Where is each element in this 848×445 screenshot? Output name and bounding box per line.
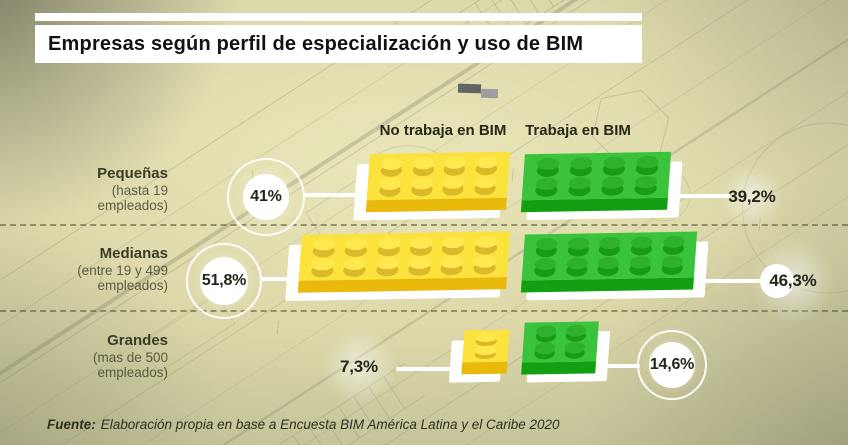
brick-base-strip: [366, 198, 507, 212]
row-label: Grandes(mas de 500empleados): [28, 333, 168, 380]
source-label: Fuente:: [47, 417, 96, 432]
row-label-name: Grandes: [28, 333, 168, 349]
source-text: Elaboración propia en base a Encuesta BI…: [101, 417, 560, 432]
value-badge-no-bim: 41%: [243, 174, 289, 220]
lego-stud: [569, 157, 592, 176]
lego-stud: [474, 235, 497, 254]
lego-stud: [474, 175, 496, 194]
row-label-detail: (hasta 19: [28, 184, 168, 199]
dashed-separator: [0, 310, 848, 312]
row-label-detail: empleados): [28, 279, 168, 294]
page-title: Empresas según perfil de especialización…: [48, 33, 583, 56]
brick-face: [522, 152, 671, 201]
background-smudge: [458, 84, 481, 94]
lego-stud: [408, 256, 431, 275]
lego-stud: [411, 177, 433, 196]
lego-stud: [534, 342, 555, 359]
brick-base-strip: [521, 198, 668, 213]
lego-stud: [598, 256, 620, 275]
brick-bim: [521, 232, 697, 293]
value-badge-bim: 14,6%: [649, 342, 695, 388]
value-badge-no-bim: 51,8%: [200, 257, 248, 305]
brick-bim: [521, 152, 671, 213]
lego-stud: [534, 257, 556, 276]
source-note: Fuente:Elaboración propia en base a Encu…: [47, 417, 560, 432]
brick-face: [367, 152, 510, 200]
lego-stud: [629, 256, 651, 275]
dashed-separator: [0, 224, 848, 226]
lego-stud: [379, 177, 401, 196]
lego-stud: [535, 325, 556, 342]
lego-stud: [343, 257, 366, 276]
row-label-detail: (entre 19 y 499: [28, 264, 168, 279]
lego-stud: [565, 325, 586, 342]
lego-stud: [442, 176, 464, 195]
lego-stud: [412, 157, 434, 176]
lego-stud: [601, 176, 624, 195]
lego-stud: [381, 157, 403, 176]
brick-no-bim: [461, 330, 509, 375]
brick-face: [299, 231, 511, 281]
background-smudge: [481, 89, 498, 99]
lego-stud: [475, 333, 497, 346]
brick-no-bim: [298, 231, 510, 293]
lego-stud: [376, 257, 399, 276]
row-label-name: Medianas: [28, 246, 168, 262]
value-badge-bim: 39,2%: [728, 187, 775, 207]
lego-stud: [536, 237, 558, 256]
lego-stud: [536, 157, 559, 176]
value-badge-bim: 46,3%: [769, 271, 816, 291]
column-header-no-bim: No trabaja en BIM: [380, 122, 507, 139]
lego-stud: [599, 236, 621, 255]
lego-stud: [662, 235, 684, 254]
title-bar: Empresas según perfil de especialización…: [35, 25, 642, 63]
lego-stud: [311, 258, 334, 277]
lego-stud: [635, 155, 658, 174]
lego-stud: [441, 255, 464, 274]
lego-stud: [377, 237, 400, 256]
lego-stud: [568, 177, 591, 196]
brick-face: [462, 330, 509, 363]
lego-stud: [345, 237, 368, 256]
row-label-detail: (mas de 500: [28, 351, 168, 366]
brick-face: [522, 232, 697, 281]
brick-face: [522, 321, 599, 362]
infographic-canvas: Empresas según perfil de especialización…: [0, 0, 848, 445]
lego-stud: [442, 235, 465, 254]
lego-stud: [474, 346, 496, 359]
lego-stud: [602, 156, 625, 175]
lego-stud: [634, 175, 657, 194]
column-header-bim: Trabaja en BIM: [525, 122, 631, 139]
row-label-detail: empleados): [28, 366, 168, 381]
brick-base-strip: [521, 361, 596, 374]
lego-stud: [566, 257, 588, 276]
lego-stud: [564, 342, 585, 359]
row-label: Medianas(entre 19 y 499empleados): [28, 246, 168, 293]
lego-stud: [661, 255, 683, 274]
brick-no-bim: [366, 152, 510, 212]
lego-stud: [312, 238, 335, 257]
brick-bim: [521, 321, 599, 374]
lego-stud: [410, 236, 433, 255]
title-top-stripe: [35, 13, 642, 21]
lego-stud: [475, 155, 497, 174]
lego-stud: [631, 236, 653, 255]
lego-stud: [534, 177, 557, 196]
lego-stud: [567, 237, 589, 256]
lego-stud: [444, 156, 466, 175]
row-label-detail: empleados): [28, 199, 168, 214]
row-label: Pequeñas(hasta 19empleados): [28, 166, 168, 213]
brick-base-strip: [461, 362, 507, 375]
lego-stud: [473, 255, 496, 274]
row-label-name: Pequeñas: [28, 166, 168, 182]
value-badge-no-bim: 7,3%: [340, 357, 378, 377]
